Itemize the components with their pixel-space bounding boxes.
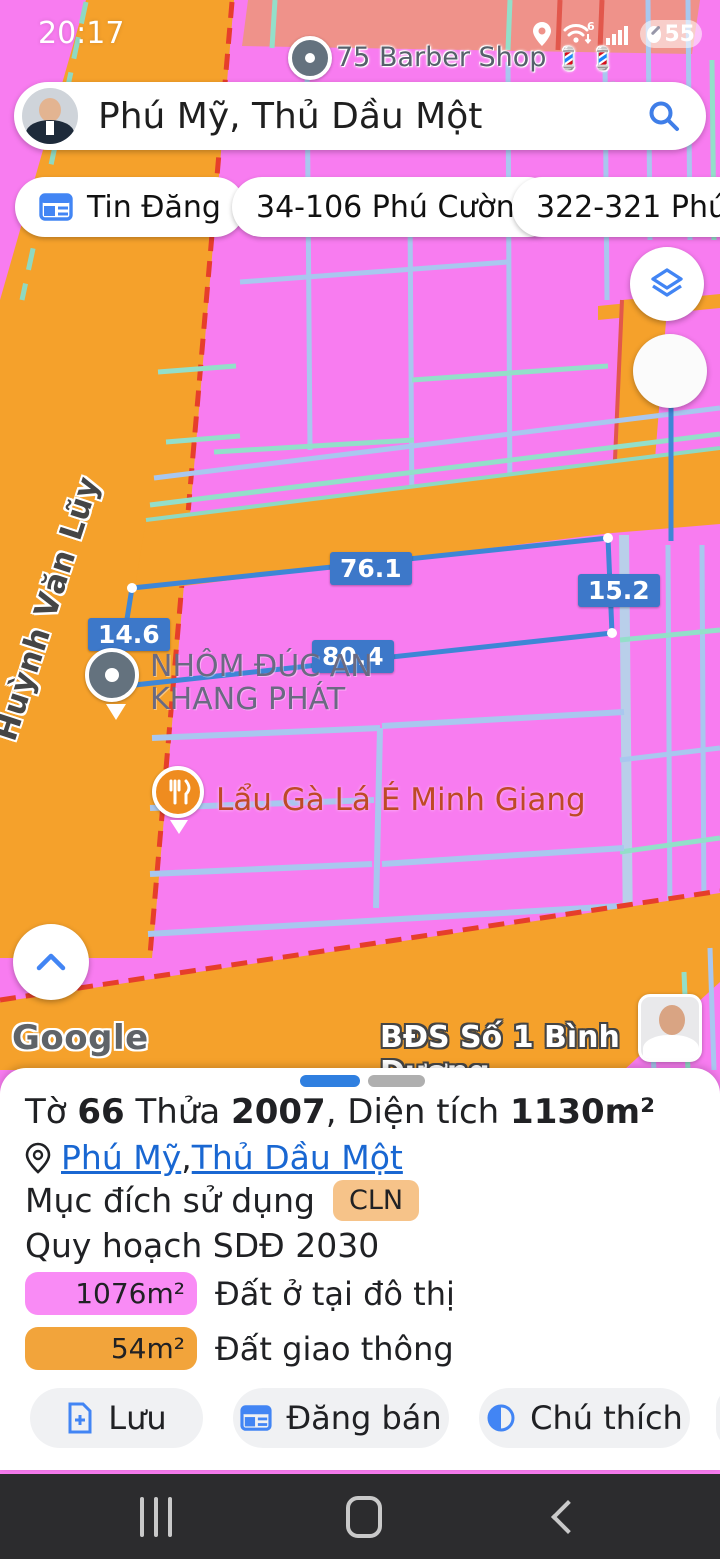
search-icon[interactable] (646, 98, 682, 134)
sheet-page-indicator[interactable] (368, 1075, 425, 1087)
business-label: NHÔM ĐÚC AN KHANG PHÁT (150, 650, 373, 716)
map-canvas[interactable] (0, 0, 720, 1070)
button-label: Chú thích (530, 1399, 683, 1437)
measure-label-right: 15.2 (578, 574, 660, 607)
link-ward[interactable]: Phú Mỹ (61, 1138, 181, 1177)
purpose-label: Mục đích sử dụng (25, 1181, 315, 1220)
business-pin-icon[interactable] (85, 648, 147, 724)
button-label: Đăng bán (286, 1399, 441, 1437)
barber-pole-icons: 💈 💈 (555, 47, 617, 72)
back-button[interactable] (551, 1500, 585, 1534)
sheet-page-indicator-active[interactable] (300, 1075, 360, 1087)
status-icons: 6 55 (531, 20, 702, 48)
restaurant-label: Lẩu Gà Lá É Minh Giang (216, 782, 586, 818)
home-button[interactable] (346, 1496, 382, 1538)
battery-saver-icon (647, 26, 661, 43)
chip-label: 34-106 Phú Cường (256, 190, 534, 225)
signal-icon (605, 21, 631, 47)
recents-button[interactable] (140, 1497, 172, 1537)
google-logo: Google (12, 1018, 149, 1058)
user-avatar-map[interactable] (638, 994, 702, 1062)
location-status-icon (531, 21, 553, 47)
chip-phu-loi[interactable]: 322-321 Phú L (512, 177, 720, 237)
purpose-row: Mục đích sử dụng CLN (25, 1180, 419, 1221)
chip-label: Tin Đăng (87, 190, 221, 225)
chip-tin-dang[interactable]: Tin Đăng (15, 177, 245, 237)
legend-label: Đất giao thông (215, 1330, 454, 1368)
status-time: 20:17 (38, 16, 124, 51)
barber-shop-pin-icon[interactable] (288, 36, 332, 80)
layers-button[interactable] (630, 247, 704, 321)
chip-phu-cuong[interactable]: 34-106 Phú Cường (232, 177, 558, 237)
measure-label-top: 76.1 (330, 552, 412, 585)
map-slider-handle[interactable] (633, 334, 707, 408)
button-label: Lưu (108, 1399, 166, 1437)
chip-label: 322-321 Phú L (536, 190, 720, 225)
expand-sheet-button[interactable] (13, 924, 89, 1000)
post-sale-button[interactable]: Đăng bán (233, 1388, 449, 1448)
location-row: Phú Mỹ, Thủ Dầu Một (25, 1138, 403, 1177)
legend-label: Đất ở tại đô thị (215, 1275, 455, 1313)
svg-text:6: 6 (587, 20, 595, 33)
battery-indicator: 55 (640, 20, 702, 48)
save-doc-icon (66, 1402, 94, 1434)
overflow-button-partial[interactable] (716, 1388, 720, 1448)
separator: , (181, 1138, 192, 1177)
legend-swatch-pink: 1076m² (25, 1272, 197, 1315)
parcel-title: Tờ 66 Thửa 2007, Diện tích 1130m² (25, 1092, 655, 1132)
bottom-sheet[interactable]: Tờ 66 Thửa 2007, Diện tích 1130m² Phú Mỹ… (0, 1068, 720, 1470)
contrast-icon (486, 1403, 516, 1433)
layers-icon (645, 262, 689, 306)
link-city[interactable]: Thủ Dầu Một (192, 1138, 403, 1177)
restaurant-pin-icon[interactable] (152, 766, 210, 838)
legend-row-traffic: 54m² Đất giao thông (25, 1327, 454, 1370)
save-button[interactable]: Lưu (30, 1388, 203, 1448)
search-input[interactable]: Phú Mỹ, Thủ Dầu Một (98, 96, 646, 137)
purpose-badge: CLN (333, 1180, 419, 1221)
measure-label-left: 14.6 (88, 618, 170, 651)
plan-label: Quy hoạch SDĐ 2030 (25, 1226, 379, 1265)
search-bar[interactable]: Phú Mỹ, Thủ Dầu Một (14, 82, 706, 150)
listing-icon (39, 192, 73, 222)
legend-row-residential: 1076m² Đất ở tại đô thị (25, 1272, 455, 1315)
wifi-icon: 6 (562, 20, 596, 48)
legend-swatch-orange: 54m² (25, 1327, 197, 1370)
listing-icon (240, 1404, 272, 1432)
phone-screen: 76.1 15.2 14.6 80.4 75 Barber Shop 💈 💈 H… (0, 0, 720, 1559)
chevron-up-icon (33, 950, 69, 974)
location-pin-icon (25, 1142, 51, 1174)
user-avatar-search[interactable] (22, 88, 78, 144)
android-nav-bar (0, 1474, 720, 1559)
legend-toggle-button[interactable]: Chú thích (479, 1388, 690, 1448)
